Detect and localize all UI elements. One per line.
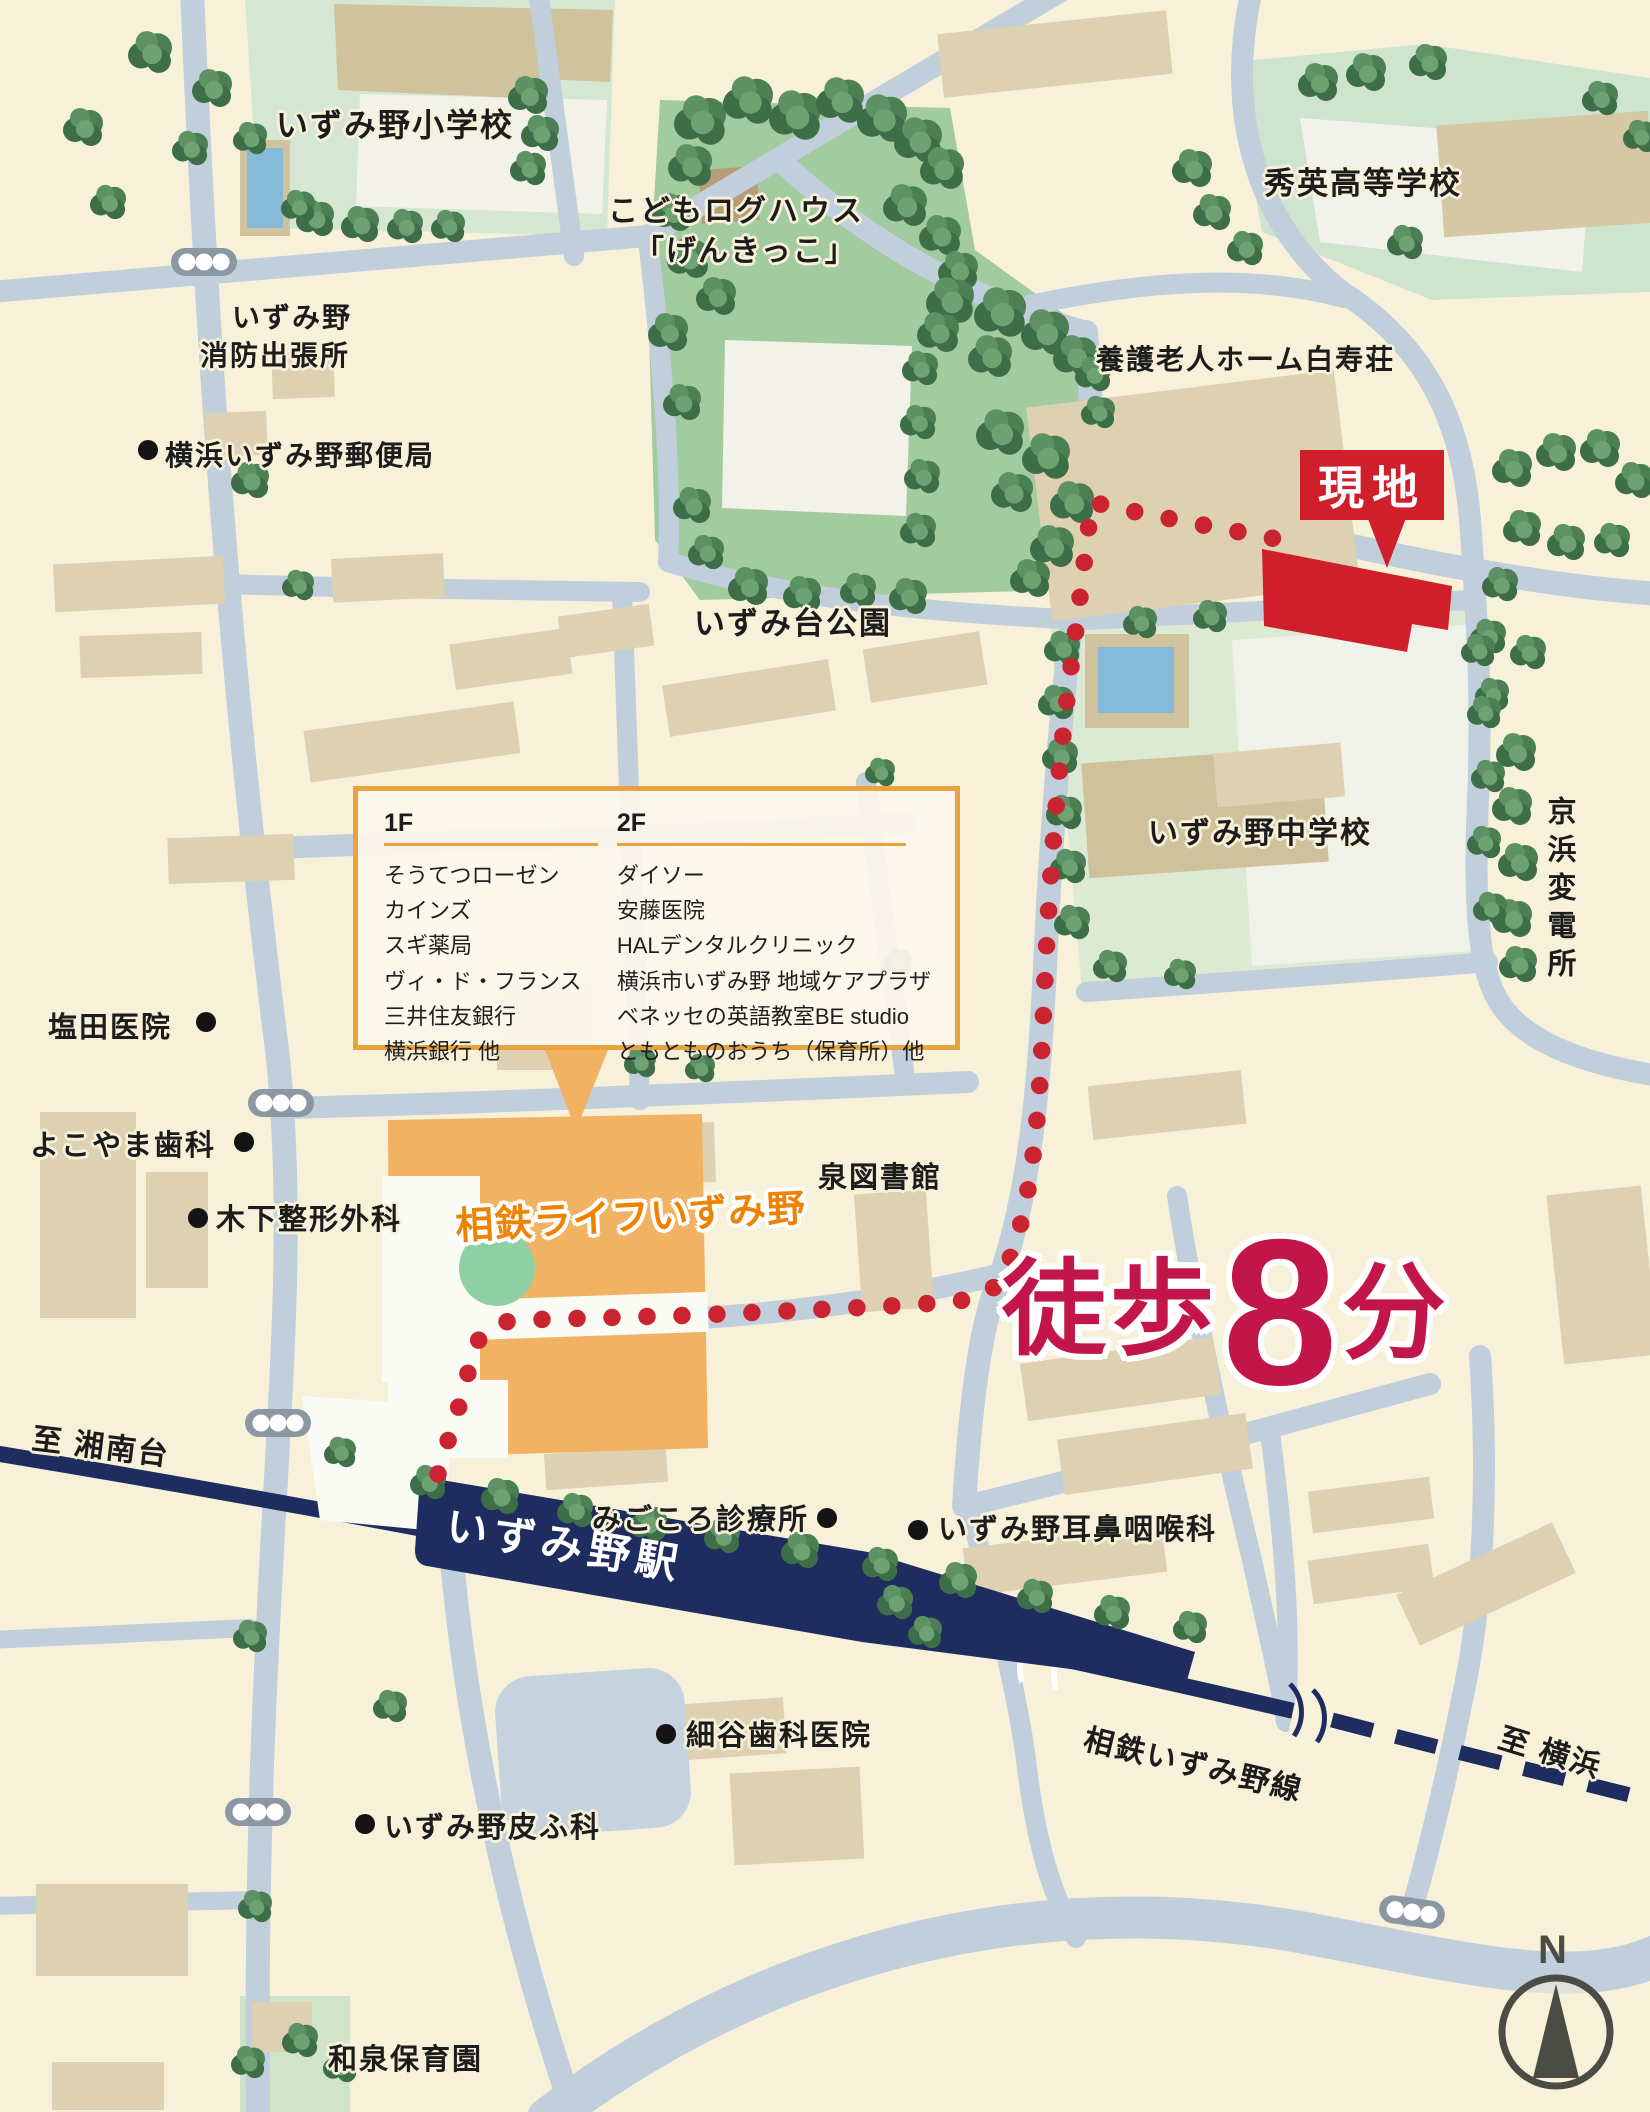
- place-dot-icon: [656, 1724, 676, 1744]
- place-dot-icon: [908, 1520, 928, 1540]
- access-map: いずみ野小学校 こどもログハウス 「げんきっこ」 秀英高等学校 いずみ野 消防出…: [0, 0, 1650, 2112]
- place-dot-icon: [234, 1132, 254, 1152]
- compass-icon: [1502, 1978, 1610, 2086]
- walk-time: 徒歩 8 分: [1002, 1222, 1446, 1405]
- tenant-floor1-column: 1F そうてつローゼンカインズスギ薬局ヴィ・ド・フランス三井住友銀行横浜銀行 他: [384, 809, 617, 1031]
- walk-time-unit: 分: [1342, 1228, 1446, 1379]
- label-nursing-home: 養護老人ホーム白寿荘: [1096, 338, 1395, 378]
- tenant-floor1-header: 1F: [384, 809, 598, 846]
- tenant-floor1-list: そうてつローゼンカインズスギ薬局ヴィ・ド・フランス三井住友銀行横浜銀行 他: [384, 858, 617, 1069]
- tenant-item: 三井住友銀行: [384, 999, 617, 1034]
- label-high-school: 秀英高等学校: [1264, 158, 1462, 203]
- label-yokoyama-dental: よこやま歯科: [30, 1122, 216, 1164]
- walk-time-prefix: 徒歩: [1002, 1224, 1218, 1375]
- tenant-item: 横浜市いずみ野 地域ケアプラザ: [617, 964, 931, 999]
- tenant-item: スギ薬局: [384, 928, 617, 963]
- tenant-item: そうてつローゼン: [384, 858, 617, 893]
- place-dot-icon: [196, 1012, 216, 1032]
- label-log-house-1: こどもログハウス: [608, 186, 864, 230]
- place-dot-icon: [817, 1508, 837, 1528]
- site-callout: 現地: [1300, 450, 1444, 520]
- tenant-floor2-column: 2F ダイソー安藤医院HALデンタルクリニック横浜市いずみ野 地域ケアプラザベネ…: [617, 809, 931, 1031]
- tenant-item: 横浜銀行 他: [384, 1034, 617, 1069]
- label-ent-clinic: いずみ野耳鼻咽喉科: [938, 1506, 1217, 1548]
- tenant-item: カインズ: [384, 893, 617, 928]
- place-dot-icon: [355, 1814, 375, 1834]
- walk-time-number: 8: [1222, 1222, 1338, 1405]
- place-dot-icon: [138, 440, 158, 460]
- label-park: いずみ台公園: [694, 598, 892, 643]
- label-izumi-library: 泉図書館: [818, 1154, 942, 1196]
- tenant-item: 安藤医院: [617, 893, 931, 928]
- tenant-item: HALデンタルクリニック: [617, 928, 931, 963]
- label-substation: 京浜変電所: [1538, 796, 1580, 986]
- label-log-house-2: 「げんきっこ」: [634, 226, 857, 270]
- tenant-item: ともとものおうち（保育所）他: [617, 1034, 931, 1069]
- label-fire-station-2: 消防出張所: [200, 334, 350, 374]
- tenant-item: ベネッセの英語教室BE studio: [617, 999, 931, 1034]
- tenant-info-box: 1F そうてつローゼンカインズスギ薬局ヴィ・ド・フランス三井住友銀行横浜銀行 他…: [353, 786, 960, 1050]
- label-fire-station-1: いずみ野: [232, 296, 352, 336]
- label-dermatology: いずみ野皮ふ科: [384, 1804, 601, 1846]
- place-dot-icon: [188, 1208, 208, 1228]
- tenant-floor2-list: ダイソー安藤医院HALデンタルクリニック横浜市いずみ野 地域ケアプラザベネッセの…: [617, 858, 931, 1069]
- tenant-floor2-header: 2F: [617, 809, 906, 846]
- compass-north-label: N: [1538, 1928, 1569, 1973]
- label-post-office: 横浜いずみ野郵便局: [165, 434, 435, 474]
- label-junior-high: いずみ野中学校: [1148, 808, 1372, 852]
- label-nursery: 和泉保育園: [328, 2036, 483, 2078]
- label-hosoya-dental: 細谷歯科医院: [686, 1712, 872, 1754]
- label-shioda-clinic: 塩田医院: [48, 1004, 172, 1046]
- label-kinoshita-orthopedics: 木下整形外科: [216, 1196, 402, 1238]
- tenant-item: ヴィ・ド・フランス: [384, 964, 617, 999]
- tenant-item: ダイソー: [617, 858, 931, 893]
- label-elementary-school: いずみ野小学校: [276, 100, 514, 146]
